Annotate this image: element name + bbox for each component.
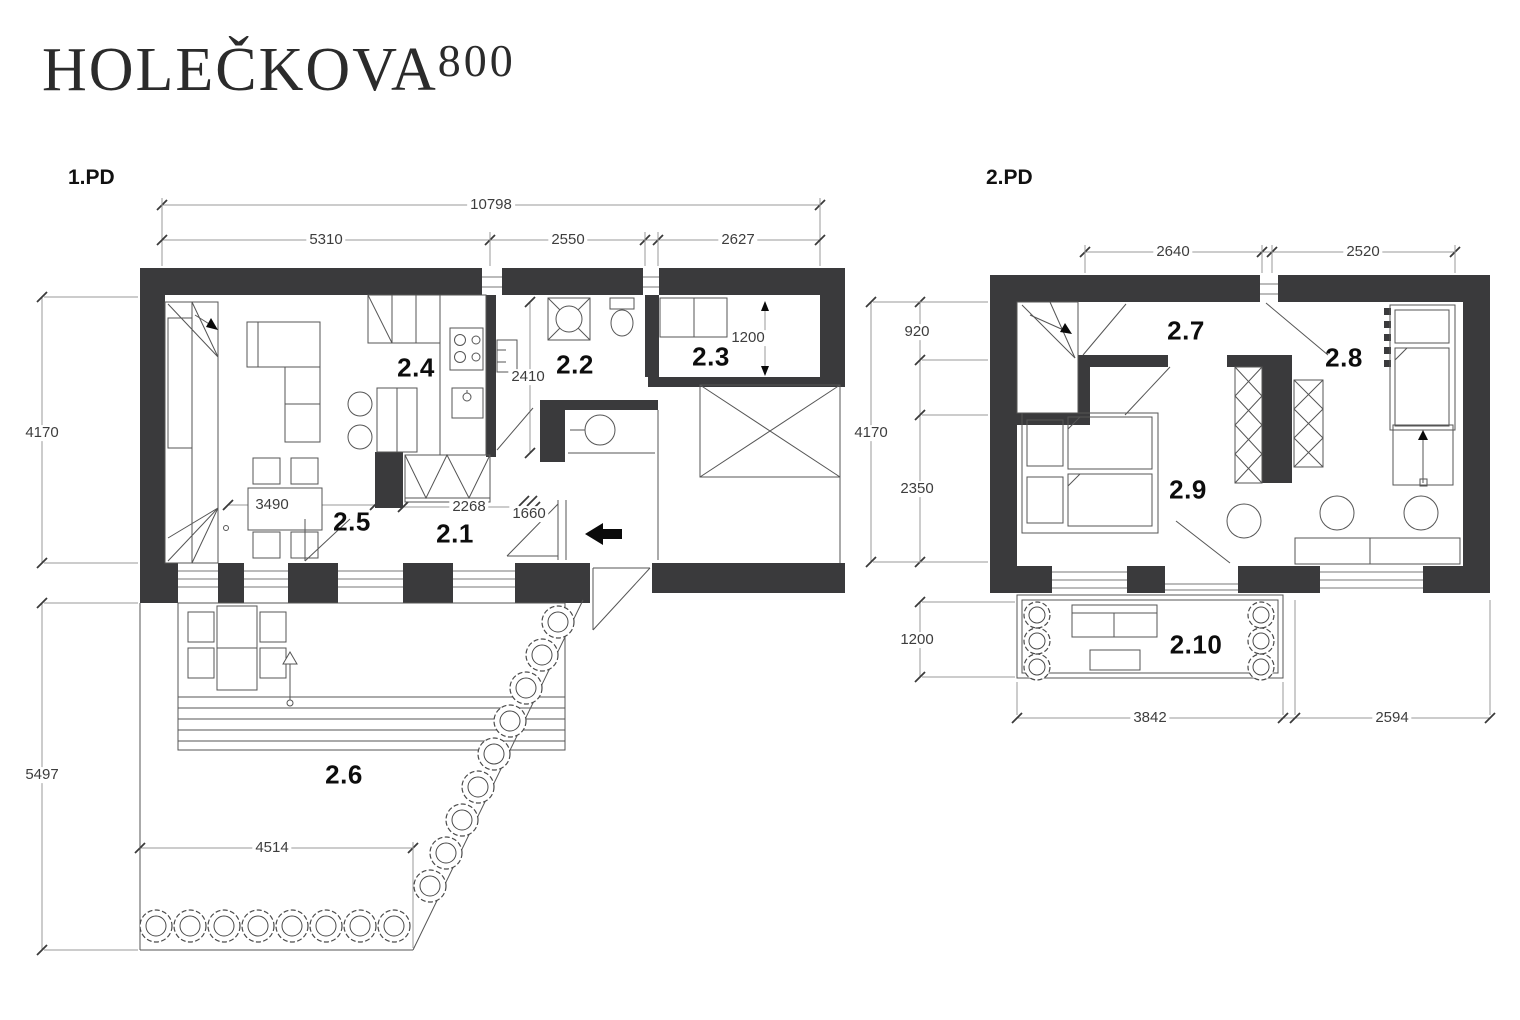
- dim-total-width: 10798: [467, 197, 515, 213]
- plan1-walls: [140, 268, 845, 603]
- bench-2-8-icon: [1295, 538, 1460, 564]
- bushes-row-icon: [140, 910, 410, 942]
- dim-left-total: 4170: [851, 425, 890, 441]
- dim-seg1: 5310: [306, 232, 345, 248]
- bed-2-8-icon: [1390, 305, 1455, 430]
- floorplan-drawing: [0, 0, 1520, 1020]
- floorplan-page: HOLEČKOVA800 1.PD 2.PD 10798 5310 2550 2…: [0, 0, 1520, 1020]
- closet-2-3-icon: [660, 298, 727, 337]
- poufs-2-8-icon: [1320, 496, 1438, 530]
- loft-ladder-icon: [1393, 425, 1453, 486]
- hall-wardrobe-icon: [405, 455, 490, 502]
- balcony-icon: [1017, 595, 1283, 678]
- pouf-2-9-icon: [1227, 504, 1261, 538]
- entrance-arrow-icon: [585, 523, 622, 545]
- staircase-icon: [165, 302, 229, 563]
- dim-bottom1: 3842: [1130, 710, 1169, 726]
- dim-living: 3490: [252, 497, 291, 513]
- laundry-basin-icon: [568, 415, 655, 453]
- void-crossed-box-icon: [658, 385, 840, 563]
- dim-top1: 2640: [1153, 244, 1192, 260]
- staircase-2pd-icon: [1017, 302, 1078, 413]
- dim-left-lower: 5497: [22, 767, 61, 783]
- plan2-label: 2.PD: [986, 166, 1033, 190]
- room-label-2-9: 2.9: [1169, 475, 1207, 506]
- bushes-diagonal-icon: [414, 606, 574, 902]
- toilet-icon: [610, 298, 634, 336]
- dim-left2: 2350: [897, 481, 936, 497]
- plan2-walls: [990, 275, 1490, 593]
- balcony-plants-icon: [1024, 602, 1274, 680]
- plan1-label: 1.PD: [68, 166, 115, 190]
- dim-seg2: 2550: [548, 232, 587, 248]
- beds-2-9-icon: [1022, 413, 1158, 533]
- dim-left1: 920: [901, 324, 932, 340]
- dim-closet: 1200: [728, 330, 767, 346]
- project-title-number: 800: [438, 35, 516, 86]
- room-label-2-1: 2.1: [436, 519, 474, 550]
- room-label-2-7: 2.7: [1167, 316, 1205, 347]
- project-title-name: HOLEČKOVA: [42, 36, 438, 104]
- dim-seg3: 2627: [718, 232, 757, 248]
- dim-top2: 2520: [1343, 244, 1382, 260]
- dim-entry: 1660: [509, 506, 548, 522]
- wardrobe-2-8-icon: [1294, 380, 1323, 467]
- room-label-2-5: 2.5: [333, 507, 371, 538]
- room-label-2-4: 2.4: [397, 353, 435, 384]
- room-label-2-10: 2.10: [1170, 630, 1223, 661]
- room-label-2-8: 2.8: [1325, 343, 1363, 374]
- project-title: HOLEČKOVA800: [42, 34, 516, 106]
- room-label-2-6: 2.6: [325, 760, 363, 791]
- sofa-icon: [247, 322, 320, 442]
- dim-left3: 1200: [897, 632, 936, 648]
- room-label-2-3: 2.3: [692, 342, 730, 373]
- shower-icon: [548, 298, 590, 340]
- dim-garden: 4514: [252, 840, 291, 856]
- terrace-furniture-icon: [188, 606, 297, 706]
- dim-hall: 2268: [449, 499, 488, 515]
- dim-bottom2: 2594: [1372, 710, 1411, 726]
- dim-left-upper: 4170: [22, 425, 61, 441]
- room-label-2-2: 2.2: [556, 350, 594, 381]
- wardrobe-2-9-icon: [1235, 367, 1262, 483]
- dim-bath: 2410: [508, 369, 547, 385]
